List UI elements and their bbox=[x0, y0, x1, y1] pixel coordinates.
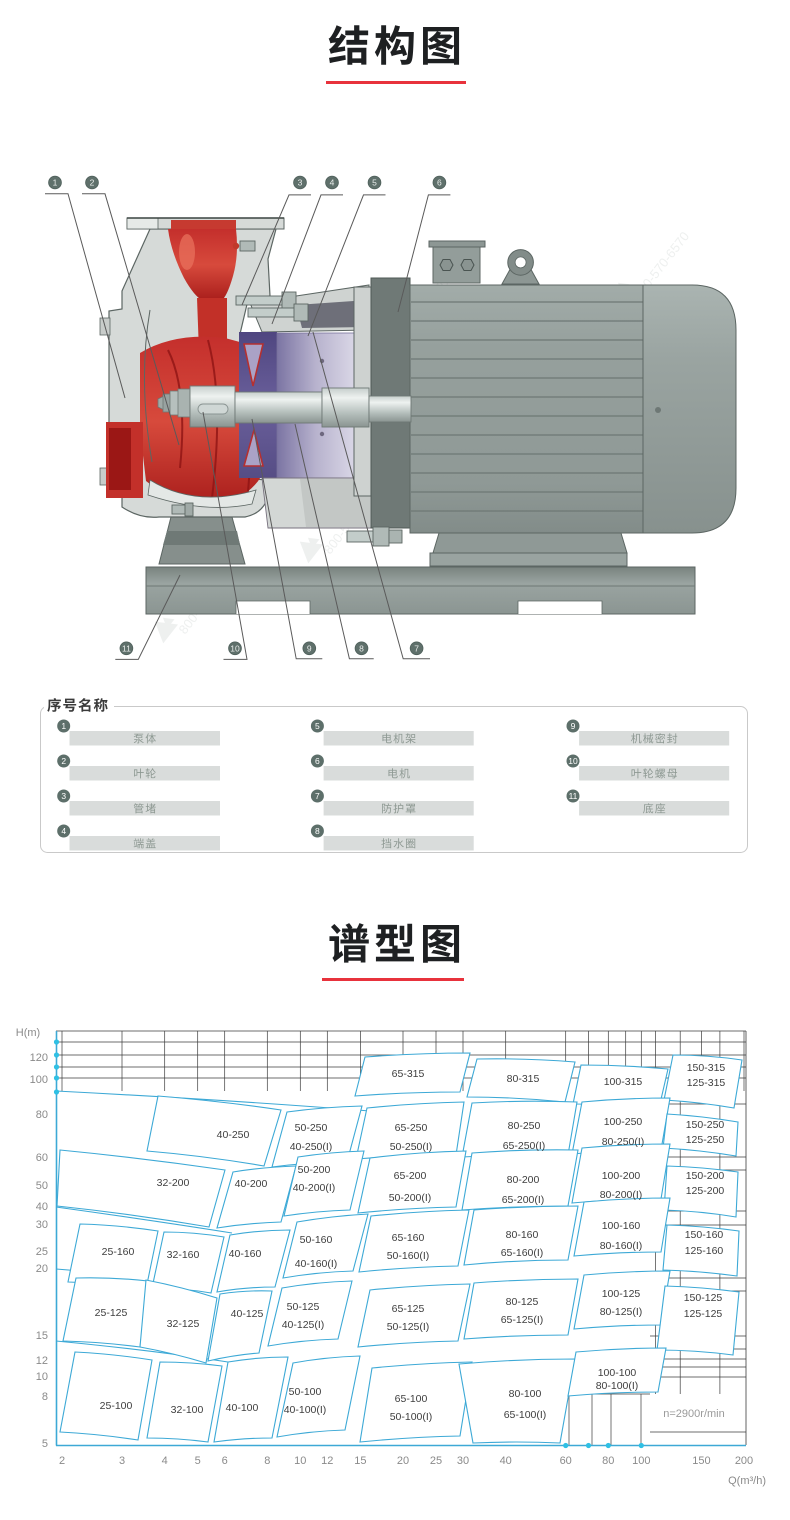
svg-text:100: 100 bbox=[632, 1455, 650, 1467]
svg-text:12: 12 bbox=[321, 1455, 333, 1467]
svg-text:6: 6 bbox=[437, 178, 442, 188]
svg-text:65-160(I): 65-160(I) bbox=[501, 1247, 544, 1259]
svg-text:2: 2 bbox=[61, 756, 66, 766]
svg-text:125-125: 125-125 bbox=[684, 1308, 723, 1320]
svg-text:8: 8 bbox=[42, 1391, 48, 1403]
svg-text:Q(m³/h): Q(m³/h) bbox=[728, 1475, 766, 1487]
svg-text:65-125: 65-125 bbox=[392, 1303, 425, 1315]
svg-text:80-125(I): 80-125(I) bbox=[600, 1306, 643, 1318]
svg-text:80-315: 80-315 bbox=[507, 1073, 540, 1085]
svg-text:32-200: 32-200 bbox=[157, 1177, 190, 1189]
svg-text:11: 11 bbox=[569, 791, 578, 801]
svg-text:5: 5 bbox=[42, 1438, 48, 1450]
svg-text:4: 4 bbox=[330, 178, 335, 188]
svg-text:65-200: 65-200 bbox=[394, 1170, 427, 1182]
svg-text:100: 100 bbox=[30, 1074, 48, 1086]
svg-text:60: 60 bbox=[36, 1152, 48, 1164]
svg-text:25-100: 25-100 bbox=[100, 1400, 133, 1412]
svg-text:100-125: 100-125 bbox=[602, 1288, 641, 1300]
svg-text:30: 30 bbox=[36, 1219, 48, 1231]
svg-text:150-160: 150-160 bbox=[685, 1229, 724, 1241]
svg-text:40-250(I): 40-250(I) bbox=[290, 1141, 333, 1153]
svg-text:25: 25 bbox=[36, 1246, 48, 1258]
svg-text:4: 4 bbox=[61, 826, 66, 836]
svg-text:2: 2 bbox=[59, 1455, 65, 1467]
svg-text:4: 4 bbox=[162, 1455, 168, 1467]
svg-text:10: 10 bbox=[294, 1455, 306, 1467]
svg-text:50-160(I): 50-160(I) bbox=[387, 1250, 430, 1262]
svg-text:10: 10 bbox=[230, 643, 240, 653]
svg-text:80-200: 80-200 bbox=[507, 1174, 540, 1186]
svg-text:65-200(I): 65-200(I) bbox=[502, 1194, 545, 1206]
svg-text:15: 15 bbox=[36, 1330, 48, 1342]
svg-text:40: 40 bbox=[36, 1201, 48, 1213]
svg-text:65-100: 65-100 bbox=[395, 1393, 428, 1405]
svg-text:125-250: 125-250 bbox=[686, 1134, 725, 1146]
svg-text:50-100: 50-100 bbox=[289, 1386, 322, 1398]
svg-text:8: 8 bbox=[359, 643, 364, 653]
svg-text:50-100(I): 50-100(I) bbox=[390, 1411, 433, 1423]
svg-text:30: 30 bbox=[457, 1455, 469, 1467]
svg-text:15: 15 bbox=[354, 1455, 366, 1467]
svg-text:40-160(I): 40-160(I) bbox=[295, 1258, 338, 1270]
svg-text:9: 9 bbox=[571, 721, 576, 731]
svg-text:100-315: 100-315 bbox=[604, 1076, 643, 1088]
svg-text:H(m): H(m) bbox=[16, 1027, 40, 1039]
svg-text:10: 10 bbox=[36, 1371, 48, 1383]
svg-text:40-200: 40-200 bbox=[235, 1178, 268, 1190]
svg-text:100-250: 100-250 bbox=[604, 1116, 643, 1128]
svg-text:5: 5 bbox=[315, 721, 320, 731]
svg-text:65-160: 65-160 bbox=[392, 1232, 425, 1244]
svg-text:10: 10 bbox=[568, 756, 578, 766]
svg-text:65-100(I): 65-100(I) bbox=[504, 1409, 547, 1421]
svg-text:150: 150 bbox=[692, 1455, 710, 1467]
svg-text:8: 8 bbox=[264, 1455, 270, 1467]
svg-text:40: 40 bbox=[500, 1455, 512, 1467]
svg-text:32-160: 32-160 bbox=[167, 1249, 200, 1261]
svg-text:50-250: 50-250 bbox=[295, 1122, 328, 1134]
svg-text:100-160: 100-160 bbox=[602, 1220, 641, 1232]
svg-text:3: 3 bbox=[61, 791, 66, 801]
svg-text:125-315: 125-315 bbox=[687, 1077, 726, 1089]
svg-text:80-160: 80-160 bbox=[506, 1229, 539, 1241]
svg-text:32-125: 32-125 bbox=[167, 1318, 200, 1330]
svg-text:150-315: 150-315 bbox=[687, 1062, 726, 1074]
svg-text:40-250: 40-250 bbox=[217, 1129, 250, 1141]
svg-text:125-160: 125-160 bbox=[685, 1245, 724, 1257]
svg-text:65-250: 65-250 bbox=[395, 1122, 428, 1134]
svg-text:1: 1 bbox=[61, 721, 66, 731]
svg-text:80-160(I): 80-160(I) bbox=[600, 1240, 643, 1252]
svg-text:1: 1 bbox=[53, 178, 58, 188]
svg-text:32-100: 32-100 bbox=[171, 1404, 204, 1416]
svg-text:40-125(I): 40-125(I) bbox=[282, 1319, 325, 1331]
svg-text:2: 2 bbox=[90, 178, 95, 188]
svg-text:7: 7 bbox=[315, 791, 320, 801]
svg-text:50-250(I): 50-250(I) bbox=[390, 1141, 433, 1153]
svg-text:40-125: 40-125 bbox=[231, 1308, 264, 1320]
svg-text:80-250(I): 80-250(I) bbox=[602, 1136, 645, 1148]
svg-text:100-200: 100-200 bbox=[602, 1170, 641, 1182]
svg-text:n=2900r/min: n=2900r/min bbox=[663, 1408, 724, 1420]
svg-text:80-200(I): 80-200(I) bbox=[600, 1189, 643, 1201]
svg-text:25-160: 25-160 bbox=[102, 1246, 135, 1258]
svg-text:6: 6 bbox=[222, 1455, 228, 1467]
svg-text:80-250: 80-250 bbox=[508, 1120, 541, 1132]
svg-text:20: 20 bbox=[397, 1455, 409, 1467]
svg-text:5: 5 bbox=[372, 178, 377, 188]
svg-text:20: 20 bbox=[36, 1263, 48, 1275]
svg-text:50-125(I): 50-125(I) bbox=[387, 1321, 430, 1333]
svg-text:65-125(I): 65-125(I) bbox=[501, 1314, 544, 1326]
svg-text:50-160: 50-160 bbox=[300, 1234, 333, 1246]
svg-text:120: 120 bbox=[30, 1052, 48, 1064]
svg-text:25-125: 25-125 bbox=[95, 1307, 128, 1319]
svg-text:100-100: 100-100 bbox=[598, 1367, 637, 1379]
svg-text:200: 200 bbox=[735, 1455, 753, 1467]
svg-text:65-315: 65-315 bbox=[392, 1068, 425, 1080]
svg-text:150-125: 150-125 bbox=[684, 1292, 723, 1304]
svg-text:12: 12 bbox=[36, 1355, 48, 1367]
svg-text:50-125: 50-125 bbox=[287, 1301, 320, 1313]
svg-text:50-200: 50-200 bbox=[298, 1164, 331, 1176]
svg-text:60: 60 bbox=[560, 1455, 572, 1467]
svg-text:80-100: 80-100 bbox=[509, 1388, 542, 1400]
svg-text:40-160: 40-160 bbox=[229, 1248, 262, 1260]
svg-text:25: 25 bbox=[430, 1455, 442, 1467]
svg-text:40-100: 40-100 bbox=[226, 1402, 259, 1414]
svg-text:40-100(I): 40-100(I) bbox=[284, 1404, 327, 1416]
svg-text:5: 5 bbox=[195, 1455, 201, 1467]
svg-text:3: 3 bbox=[298, 178, 303, 188]
svg-text:6: 6 bbox=[315, 756, 320, 766]
svg-text:80: 80 bbox=[602, 1455, 614, 1467]
svg-text:7: 7 bbox=[414, 643, 419, 653]
svg-text:50-200(I): 50-200(I) bbox=[389, 1192, 432, 1204]
svg-text:9: 9 bbox=[307, 643, 312, 653]
svg-text:80-100(I): 80-100(I) bbox=[596, 1380, 639, 1392]
svg-text:125-200: 125-200 bbox=[686, 1185, 725, 1197]
svg-text:150-200: 150-200 bbox=[686, 1170, 725, 1182]
svg-text:40-200(I): 40-200(I) bbox=[293, 1182, 336, 1194]
svg-text:11: 11 bbox=[122, 643, 131, 653]
svg-text:50: 50 bbox=[36, 1180, 48, 1192]
svg-text:8: 8 bbox=[315, 826, 320, 836]
svg-text:80-125: 80-125 bbox=[506, 1296, 539, 1308]
svg-text:80: 80 bbox=[36, 1109, 48, 1121]
svg-text:150-250: 150-250 bbox=[686, 1119, 725, 1131]
svg-text:3: 3 bbox=[119, 1455, 125, 1467]
svg-text:65-250(I): 65-250(I) bbox=[503, 1140, 546, 1152]
